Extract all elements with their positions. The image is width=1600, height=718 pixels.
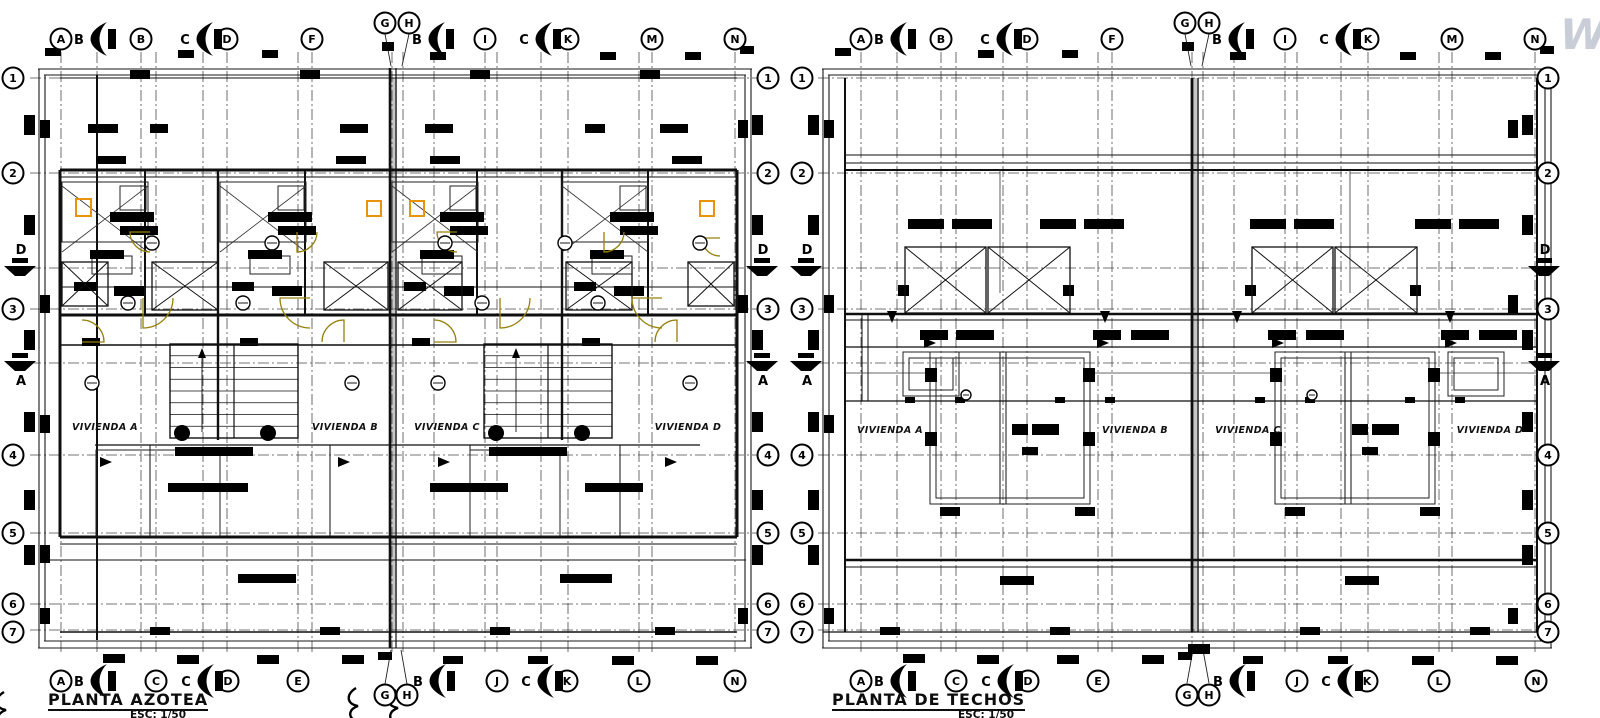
section-cut-flag-icon (4, 361, 36, 371)
solid-fixture (24, 545, 35, 565)
solid-fixture (1522, 545, 1533, 565)
solid-fixture (382, 42, 394, 51)
solid-fixture (1328, 656, 1348, 664)
solid-fixture (248, 250, 282, 259)
plan-azotea: ABDFGHIKMNACDEGHJKLN12345671234567BCBCBC… (0, 13, 779, 718)
solid-fixture (103, 654, 125, 663)
solid-fixture (24, 412, 35, 432)
solid-fixture (752, 330, 763, 350)
solid-fixture (40, 545, 50, 563)
axis-bubble-label: B (937, 33, 945, 46)
axis-bubble-label: A (57, 675, 66, 688)
solid-fixture (1230, 52, 1246, 60)
solid-fixture (320, 627, 340, 635)
solid-fixture (430, 52, 446, 60)
solid-fixture (336, 156, 366, 164)
section-cut-label: D (758, 243, 769, 258)
solid-fixture (808, 412, 819, 432)
solid-fixture (824, 120, 834, 138)
axis-bubble-label: 6 (764, 598, 772, 611)
section-cut-flag-bar (798, 258, 814, 263)
section-cut-flag-bar (1536, 353, 1552, 358)
solid-fixture (272, 286, 302, 296)
axis-bubble-label: K (1363, 675, 1372, 688)
solid-fixture (262, 50, 278, 58)
section-cut-flag-bar (754, 353, 770, 358)
bubble-leader-line (1202, 34, 1209, 66)
section-cut-flag-icon (538, 664, 555, 698)
solid-fixture (940, 507, 960, 516)
solid-fixture (1040, 219, 1076, 229)
highlight-box (367, 201, 381, 216)
stair-post-dot (260, 425, 276, 441)
room-label: VIVIENDA A (857, 425, 923, 436)
solid-fixture (114, 286, 144, 296)
axis-bubble-label: N (730, 33, 739, 46)
solid-fixture (752, 412, 763, 432)
solid-fixture (1083, 368, 1095, 382)
break-squiggle (0, 692, 6, 718)
axis-bubble-label: J (1294, 675, 1299, 688)
solid-fixture (490, 627, 510, 635)
section-cut-flag-bar (108, 29, 116, 49)
solid-fixture (1182, 42, 1194, 51)
axis-bubble-label: 3 (798, 303, 806, 316)
room-label: VIVIENDA B (312, 422, 378, 433)
solid-fixture (610, 212, 654, 222)
solid-fixture (1362, 447, 1378, 455)
section-cut-flag-icon (4, 266, 36, 276)
axis-bubble-label: 7 (798, 626, 806, 639)
fixture-outline (936, 358, 1084, 498)
section-cut-label: D (16, 243, 27, 258)
solid-fixture (1012, 424, 1028, 435)
plan-title-azotea-text: PLANTA AZOTEA (48, 690, 208, 711)
axis-bubble-label: 3 (9, 303, 17, 316)
direction-arrow (665, 457, 677, 467)
stair-post-dot (574, 425, 590, 441)
section-cut-label: C (519, 33, 529, 48)
section-cut-flag-bar (754, 258, 770, 263)
solid-fixture (808, 545, 819, 565)
solid-fixture (1063, 285, 1074, 296)
door-swing-arc (143, 298, 173, 328)
section-cut-label: B (74, 33, 84, 48)
solid-fixture (1105, 397, 1115, 403)
solid-fixture (977, 655, 999, 664)
solid-fixture (1410, 285, 1421, 296)
axis-bubble-label: C (952, 675, 960, 688)
stair-direction-arrow (512, 348, 520, 358)
solid-fixture (1075, 507, 1095, 516)
solid-fixture (1250, 219, 1286, 229)
solid-fixture (1050, 627, 1070, 635)
fixture-outline (96, 450, 220, 536)
solid-fixture (1243, 656, 1263, 664)
solid-fixture (835, 48, 851, 56)
section-cut-flag-icon (429, 22, 446, 56)
axis-bubble-label: G (1182, 689, 1191, 702)
solid-fixture (412, 338, 430, 346)
axis-bubble-label: C (152, 675, 160, 688)
axis-bubble-label: I (1283, 33, 1287, 46)
blueprint-canvas: ABDFGHIKMNACDEGHJKLN12345671234567BCBCBC… (0, 0, 1600, 718)
axis-bubble-label: 4 (9, 449, 17, 462)
section-cut-label: B (74, 675, 84, 690)
solid-fixture (585, 483, 643, 492)
solid-fixture (1245, 285, 1256, 296)
solid-fixture (978, 50, 994, 58)
solid-fixture (1522, 330, 1533, 350)
solid-fixture (1496, 656, 1518, 665)
solid-fixture (752, 115, 763, 135)
solid-fixture (1415, 219, 1451, 229)
section-cut-flag-bar (12, 353, 28, 358)
solid-fixture (1508, 295, 1518, 313)
solid-fixture (672, 156, 702, 164)
section-cut-label: C (981, 675, 991, 690)
section-cut-flag-bar (553, 29, 561, 49)
section-cut-label: A (802, 374, 812, 389)
axis-bubble-label: 6 (9, 598, 17, 611)
solid-fixture (1428, 432, 1440, 446)
solid-fixture (1485, 52, 1501, 60)
room-label: VIVIENDA D (655, 422, 722, 433)
solid-fixture (880, 627, 900, 635)
solid-fixture (150, 124, 168, 133)
solid-fixture (1352, 424, 1368, 435)
axis-bubble-label: 4 (798, 449, 806, 462)
section-cut-flag-bar (446, 29, 454, 49)
solid-fixture (1420, 507, 1440, 516)
section-cut-flag-icon (430, 664, 447, 698)
axis-bubble-label: 4 (764, 449, 772, 462)
section-cut-flag-icon (91, 22, 108, 56)
solid-fixture (1188, 644, 1210, 654)
solid-fixture (808, 490, 819, 510)
room-label: VIVIENDA C (414, 422, 480, 433)
axis-bubble-label: 1 (764, 72, 772, 85)
solid-fixture (1255, 397, 1265, 403)
solid-fixture (1131, 330, 1169, 340)
solid-fixture (489, 447, 567, 456)
section-cut-label: C (181, 675, 191, 690)
section-cut-flag-bar (1247, 671, 1255, 691)
section-cut-label: C (521, 675, 531, 690)
solid-fixture (1345, 576, 1379, 585)
solid-fixture (824, 608, 834, 624)
solid-fixture (1285, 507, 1305, 516)
room-label: VIVIENDA A (72, 422, 138, 433)
room-label: VIVIENDA D (1457, 425, 1524, 436)
blueprint-svg: ABDFGHIKMNACDEGHJKLN12345671234567BCBCBC… (0, 0, 1600, 718)
section-cut-flag-bar (12, 258, 28, 263)
solid-fixture (905, 397, 915, 403)
section-cut-label: A (16, 374, 26, 389)
axis-bubble-label: 4 (1544, 449, 1552, 462)
solid-fixture (430, 483, 508, 492)
solid-fixture (1522, 115, 1533, 135)
axis-bubble-label: F (308, 33, 316, 46)
highlight-box (700, 201, 714, 216)
axis-bubble-label: K (1364, 33, 1373, 46)
solid-fixture (1508, 608, 1518, 624)
solid-fixture (1270, 368, 1282, 382)
solid-fixture (1372, 424, 1399, 435)
solid-fixture (40, 608, 50, 624)
door-swing-arc (655, 320, 677, 342)
axis-bubble-label: I (483, 33, 487, 46)
axis-bubble-label: 2 (1544, 167, 1552, 180)
solid-fixture (1522, 215, 1533, 235)
section-cut-flag-icon (891, 22, 908, 56)
section-cut-flag-bar (1355, 671, 1363, 691)
axis-bubble-label: H (1204, 17, 1213, 30)
section-cut-flag-bar (555, 671, 563, 691)
section-cut-flag-bar (108, 671, 116, 691)
section-cut-label: B (412, 33, 422, 48)
solid-fixture (685, 52, 701, 60)
plan-scale-techos: ESC: 1/50 (958, 709, 1014, 718)
section-cut-label: A (1540, 374, 1550, 389)
axis-bubble-label: 6 (1544, 598, 1552, 611)
section-cut-label: C (980, 33, 990, 48)
axis-bubble-label: G (380, 17, 389, 30)
axis-bubble-label: 1 (1544, 72, 1552, 85)
axis-bubble-label: 5 (798, 527, 806, 540)
section-cut-flag-icon (1230, 664, 1247, 698)
section-cut-flag-icon (1528, 266, 1560, 276)
solid-fixture (24, 115, 35, 135)
solid-fixture (952, 219, 992, 229)
solid-fixture (752, 490, 763, 510)
solid-fixture (24, 215, 35, 235)
solid-fixture (1083, 432, 1095, 446)
stair-post-dot (174, 425, 190, 441)
solid-fixture (1455, 397, 1465, 403)
solid-fixture (1000, 576, 1034, 585)
section-cut-flag-bar (1014, 29, 1022, 49)
solid-fixture (585, 124, 605, 133)
axis-bubble-label: G (1180, 17, 1189, 30)
solid-fixture (614, 286, 644, 296)
section-cut-flag-icon (536, 22, 553, 56)
solid-fixture (908, 219, 944, 229)
solid-fixture (752, 545, 763, 565)
solid-fixture (443, 656, 463, 664)
section-cut-flag-icon (1229, 22, 1246, 56)
axis-bubble-label: 3 (1544, 303, 1552, 316)
axis-bubble-label: K (563, 675, 572, 688)
axis-bubble-label: E (294, 675, 302, 688)
axis-bubble-label: 7 (764, 626, 772, 639)
bubble-leader-line (1203, 650, 1209, 683)
section-cut-flag-bar (1536, 258, 1552, 263)
solid-fixture (378, 652, 392, 660)
solid-fixture (925, 368, 937, 382)
axis-bubble-label: L (635, 675, 642, 688)
axis-bubble-label: K (564, 33, 573, 46)
axis-bubble-label: H (404, 17, 413, 30)
axis-bubble-label: N (1530, 33, 1539, 46)
axis-bubble-label: 7 (9, 626, 17, 639)
solid-fixture (738, 120, 748, 138)
solid-fixture (168, 483, 248, 492)
section-cut-flag-bar (214, 29, 222, 49)
plan-title-techos-text: PLANTA DE TECHOS (832, 690, 1025, 711)
direction-arrow (1232, 311, 1242, 323)
solid-fixture (238, 574, 296, 583)
section-cut-flag-icon (197, 22, 214, 56)
direction-arrow (1100, 311, 1110, 323)
solid-fixture (824, 295, 834, 313)
solid-fixture (90, 250, 124, 259)
axis-bubble-label: 1 (798, 72, 806, 85)
solid-fixture (1459, 219, 1499, 229)
solid-fixture (824, 415, 834, 433)
solid-fixture (404, 282, 426, 291)
solid-fixture (440, 212, 484, 222)
solid-fixture (40, 295, 50, 313)
axis-bubble-label: H (402, 689, 411, 702)
axis-bubble-label: 2 (9, 167, 17, 180)
solid-fixture (640, 70, 660, 79)
solid-fixture (120, 226, 158, 235)
solid-fixture (898, 285, 909, 296)
solid-fixture (738, 608, 748, 624)
solid-fixture (956, 330, 994, 340)
axis-bubble-label: A (857, 675, 866, 688)
plan-scale-azotea: ESC: 1/50 (130, 709, 186, 718)
axis-bubble-label: 5 (764, 527, 772, 540)
axis-bubble-label: J (494, 675, 499, 688)
section-cut-label: C (180, 33, 190, 48)
solid-fixture (340, 124, 368, 133)
section-cut-flag-bar (1015, 671, 1023, 691)
direction-arrow (100, 457, 112, 467)
solid-fixture (1062, 50, 1078, 58)
solid-fixture (420, 250, 454, 259)
axis-bubble-label: 3 (764, 303, 772, 316)
plan-techos: ABDFGHIKMNACDEGHJKLN12345671234567BCBCBC… (790, 13, 1560, 706)
section-cut-flag-icon (1528, 361, 1560, 371)
section-cut-flag-icon (1336, 22, 1353, 56)
section-cut-label: B (413, 675, 423, 690)
bubble-leader-line (401, 650, 407, 684)
solid-fixture (612, 656, 634, 665)
highlight-box (76, 199, 91, 216)
solid-fixture (738, 295, 748, 313)
solid-fixture (88, 124, 118, 133)
solid-fixture (470, 70, 490, 79)
section-cut-flag-icon (790, 266, 822, 276)
section-cut-flag-bar (908, 29, 916, 49)
solid-fixture (655, 627, 675, 635)
solid-fixture (903, 654, 925, 663)
section-cut-label: A (758, 374, 768, 389)
axis-bubble-label: N (730, 675, 739, 688)
stair-direction-arrow (198, 348, 206, 358)
solid-fixture (600, 52, 616, 60)
solid-fixture (40, 120, 50, 138)
direction-arrow (438, 457, 450, 467)
axis-bubble-label: E (1094, 675, 1102, 688)
section-cut-label: C (1321, 675, 1331, 690)
solid-fixture (620, 226, 658, 235)
solid-fixture (178, 50, 194, 58)
solid-fixture (560, 574, 612, 583)
axis-bubble-label: N (1531, 675, 1540, 688)
solid-fixture (808, 215, 819, 235)
solid-fixture (1142, 655, 1164, 664)
solid-fixture (175, 447, 253, 456)
solid-fixture (1057, 655, 1079, 664)
stair-post-dot (488, 425, 504, 441)
section-cut-flag-bar (798, 353, 814, 358)
section-cut-flag-icon (997, 22, 1014, 56)
axis-bubble-label: 6 (798, 598, 806, 611)
solid-fixture (1294, 219, 1334, 229)
plan-title-techos: PLANTA DE TECHOS (832, 690, 1025, 711)
section-cut-label: B (874, 675, 884, 690)
axis-bubble-label: 1 (9, 72, 17, 85)
axis-bubble-label: D (1022, 33, 1031, 46)
door-swing-arc (322, 320, 344, 342)
axis-bubble-label: G (380, 689, 389, 702)
solid-fixture (150, 627, 170, 635)
axis-bubble-label: D (1023, 675, 1032, 688)
section-cut-flag-bar (908, 671, 916, 691)
fixture-outline (470, 450, 560, 536)
axis-bubble-label: B (137, 33, 145, 46)
solid-fixture (1522, 412, 1533, 432)
solid-fixture (40, 415, 50, 433)
solid-fixture (430, 156, 460, 164)
axis-bubble-label: L (1435, 675, 1442, 688)
direction-arrow (338, 457, 350, 467)
solid-fixture (268, 212, 312, 222)
solid-fixture (257, 655, 279, 664)
solid-fixture (96, 156, 126, 164)
solid-fixture (24, 330, 35, 350)
door-swing-arc (500, 298, 530, 328)
solid-fixture (1470, 627, 1490, 635)
room-label: VIVIENDA C (1215, 425, 1281, 436)
axis-bubble-label: 2 (798, 167, 806, 180)
solid-fixture (1479, 330, 1517, 340)
solid-fixture (425, 124, 453, 133)
section-cut-label: B (874, 33, 884, 48)
solid-fixture (444, 286, 474, 296)
solid-fixture (130, 70, 150, 79)
solid-fixture (177, 655, 199, 664)
axis-bubble-label: 7 (1544, 626, 1552, 639)
solid-fixture (1084, 219, 1124, 229)
solid-fixture (24, 490, 35, 510)
solid-fixture (300, 70, 320, 79)
solid-fixture (1032, 424, 1059, 435)
solid-fixture (574, 282, 596, 291)
solid-fixture (696, 656, 718, 665)
section-cut-label: B (1212, 33, 1222, 48)
solid-fixture (450, 226, 488, 235)
solid-fixture (232, 282, 254, 291)
axis-bubble-label: A (857, 33, 866, 46)
solid-fixture (1055, 397, 1065, 403)
solid-fixture (1412, 656, 1434, 665)
solid-fixture (808, 330, 819, 350)
solid-fixture (1428, 368, 1440, 382)
